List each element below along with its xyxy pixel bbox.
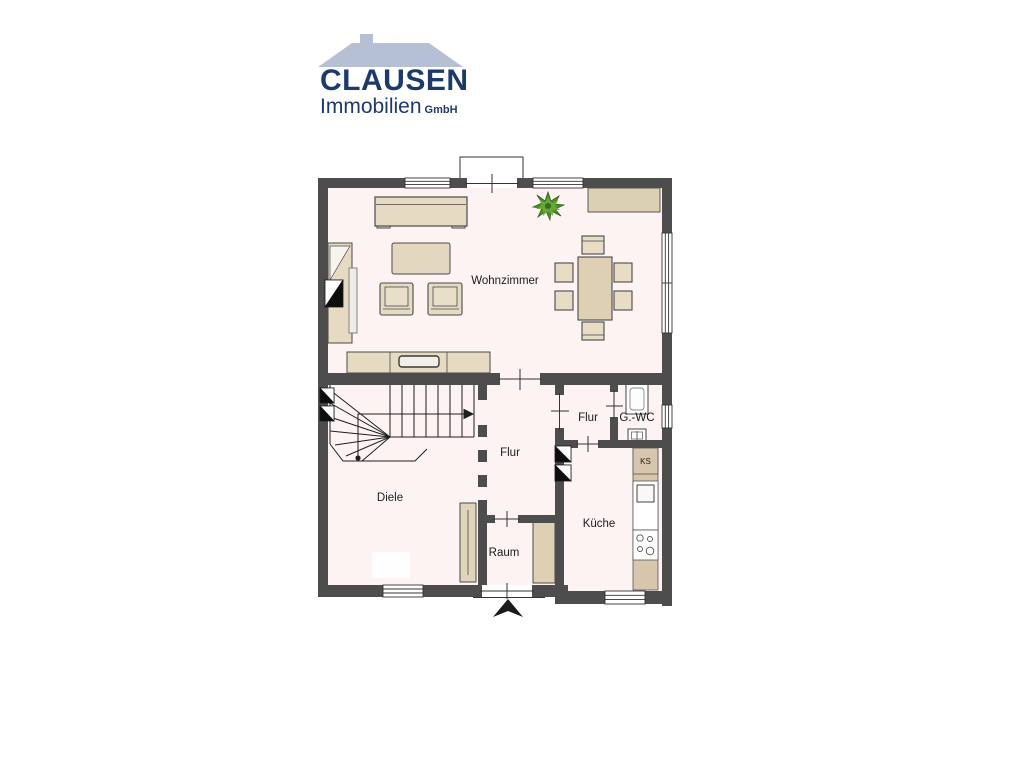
terrace-door [460, 157, 523, 193]
window-wc-right [662, 405, 672, 428]
washbasin-icon [626, 384, 648, 414]
armchair-right [428, 283, 462, 315]
armchair-left [380, 283, 413, 315]
logo-roof-icon [318, 31, 463, 67]
entrance-arrow [493, 599, 523, 617]
stove-icon [633, 530, 658, 560]
dining-table [578, 257, 612, 320]
window-living-right [662, 233, 672, 333]
fridge-label: KS [640, 457, 651, 466]
logo-suffix: GmbH [425, 104, 458, 116]
coffee-table [392, 243, 450, 274]
room-label-living: Wohnzimmer [471, 275, 539, 287]
tv-icon [399, 356, 439, 367]
doormat [372, 552, 410, 578]
window-living-top-left [405, 178, 450, 188]
sideboard [588, 188, 660, 212]
tv-lowboard [347, 352, 490, 373]
window-kitchen-bottom [605, 591, 645, 604]
hall-wardrobe [460, 503, 476, 582]
logo-subtitle: Immobilien [320, 95, 422, 118]
room-label-guest-wc: G.-WC [619, 412, 654, 424]
room-label-corridor: Flur [500, 447, 520, 459]
floor-plan-page: CLAUSEN ImmobilienGmbH [0, 0, 1024, 768]
room-label-hall: Diele [377, 492, 403, 504]
sink-icon [637, 485, 654, 502]
logo-subtitle-line: ImmobilienGmbH [320, 96, 458, 117]
floor-plan: Wohnzimmer Diele Flur Flur G.-WC Raum Kü… [300, 140, 700, 630]
room-label-corridor-small: Flur [578, 412, 598, 424]
logo-company-name: CLAUSEN [320, 66, 469, 96]
window-living-top-right [533, 178, 583, 188]
room-label-kitchen: Küche [583, 518, 616, 530]
sofa [375, 197, 467, 228]
window-hall-bottom [383, 585, 423, 597]
room-label-room: Raum [489, 547, 520, 559]
fireplace-chimney-icon [325, 280, 343, 307]
roof-chimney [360, 34, 373, 44]
kitchen-counter [633, 448, 658, 590]
room-wardrobe [533, 522, 555, 583]
